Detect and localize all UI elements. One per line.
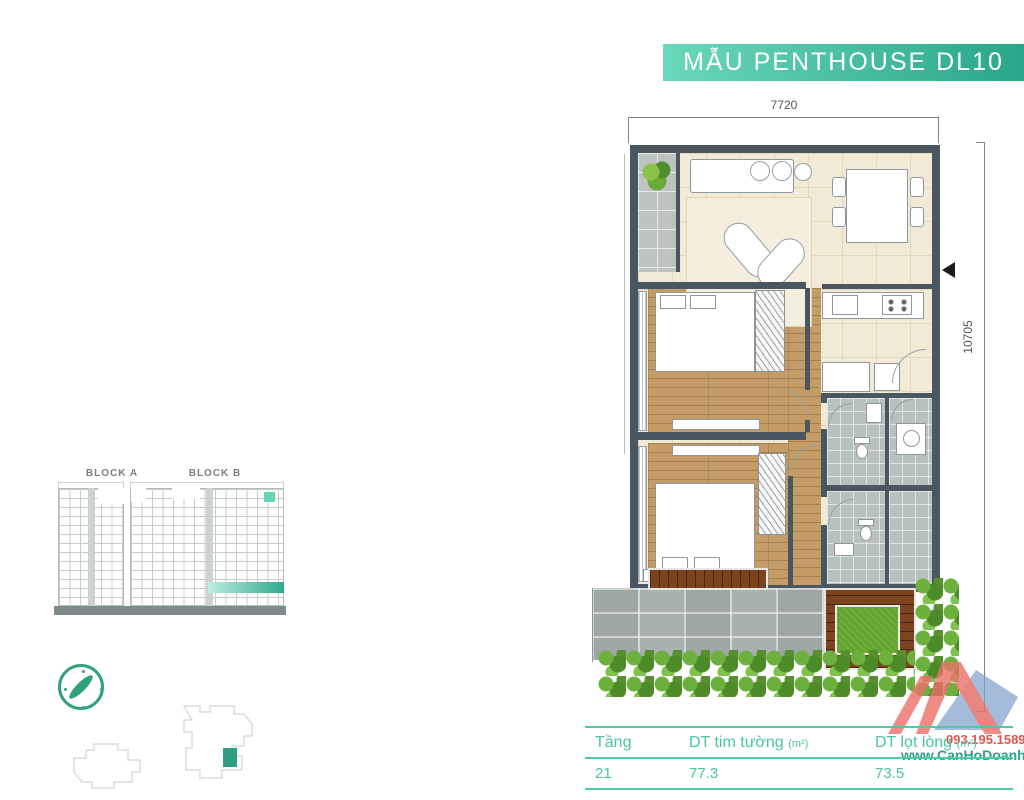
penthouse-band — [208, 582, 284, 593]
wall — [822, 284, 932, 289]
building-elevation: BLOCK A BLOCK B — [52, 468, 290, 620]
value-floor: 21 — [585, 765, 679, 782]
compass-tick — [82, 670, 85, 673]
pillow — [660, 295, 686, 309]
chair — [910, 177, 924, 197]
washer-door — [903, 430, 920, 447]
header-floor: Tầng — [585, 734, 679, 752]
window-strip — [638, 291, 647, 431]
site-plan — [60, 700, 272, 798]
header-gross-label: DT tim tường — [689, 734, 788, 751]
plant-icon — [642, 161, 672, 191]
kitchen-sink — [832, 295, 858, 315]
page-title-text: MẪU PENTHOUSE DL10 — [683, 48, 1004, 77]
header-net-unit: (m²) — [957, 738, 977, 750]
washing-machine — [896, 423, 926, 455]
wall — [638, 282, 806, 289]
dresser — [672, 445, 760, 456]
header-floor-label: Tầng — [595, 734, 631, 751]
value-net-area: 73.5 — [865, 765, 1013, 782]
brochure-page: MẪU PENTHOUSE DL10 7720 10705 — [0, 0, 1024, 800]
floor-plan — [588, 140, 992, 722]
toilet-tank — [854, 437, 870, 444]
header-net-area: DT lọt lòng (m²) — [865, 734, 1013, 752]
bath-sink — [866, 403, 882, 423]
roof-step — [131, 488, 146, 502]
area-table: Tầng DT tim tường (m²) DT lọt lòng (m²) … — [585, 726, 1013, 790]
compass-needle — [67, 673, 96, 702]
wall — [638, 432, 806, 440]
wall — [885, 491, 889, 584]
roof-step — [98, 488, 124, 504]
header-net-label: DT lọt lòng — [875, 734, 957, 751]
wall — [821, 485, 932, 491]
block-b-footprint — [184, 706, 252, 778]
dimension-top-line — [628, 117, 939, 118]
block-b-label: BLOCK B — [170, 468, 260, 479]
lawn — [835, 605, 900, 655]
table-value-row: 21 77.3 73.5 — [585, 759, 1013, 790]
pillow — [690, 295, 716, 309]
dining-table — [846, 169, 908, 243]
compass-tick — [64, 688, 67, 691]
wardrobe — [758, 453, 786, 535]
page-title: MẪU PENTHOUSE DL10 — [663, 44, 1024, 81]
unit-location-marker — [223, 748, 237, 767]
chair — [910, 207, 924, 227]
toilet-tank — [858, 519, 874, 526]
cushion — [750, 161, 770, 181]
header-gross-area: DT tim tường (m²) — [679, 734, 865, 752]
planter-deck — [648, 568, 768, 590]
value-gross-area: 77.3 — [679, 765, 865, 782]
header-gross-unit: (m²) — [788, 738, 808, 750]
block-a-label: BLOCK A — [72, 468, 152, 479]
dimension-top-label: 7720 — [628, 98, 940, 112]
toilet-bowl — [856, 444, 868, 459]
wall — [827, 393, 932, 398]
wall — [788, 476, 793, 585]
chair — [832, 177, 846, 197]
cushion — [794, 163, 812, 181]
block-a-footprint — [74, 744, 140, 788]
table-header-row: Tầng DT tim tường (m²) DT lọt lòng (m²) — [585, 726, 1013, 759]
wall — [805, 420, 810, 432]
apartment-outline — [630, 145, 940, 592]
bath-sink — [834, 543, 854, 556]
terrace-edge-line — [592, 588, 593, 662]
balcony-floor — [638, 153, 676, 272]
laundry-floor — [889, 491, 932, 584]
stove — [882, 295, 912, 315]
wall — [821, 525, 827, 585]
toilet-bowl — [860, 526, 872, 541]
wall — [676, 153, 680, 272]
hedge — [598, 650, 915, 697]
entry-door-arc — [892, 349, 926, 383]
cabinet — [822, 362, 870, 392]
chair — [832, 207, 846, 227]
wardrobe — [755, 290, 785, 372]
compass-tick — [100, 688, 103, 691]
wall-dimension-line — [624, 154, 625, 454]
wall — [805, 288, 810, 390]
dresser — [672, 419, 760, 430]
unit-highlight-cell — [264, 492, 275, 502]
cushion — [772, 161, 792, 181]
podium-base — [54, 606, 286, 615]
roof-step — [172, 488, 200, 499]
core-strip — [88, 488, 95, 606]
wall — [885, 398, 889, 485]
window-strip — [638, 446, 647, 582]
